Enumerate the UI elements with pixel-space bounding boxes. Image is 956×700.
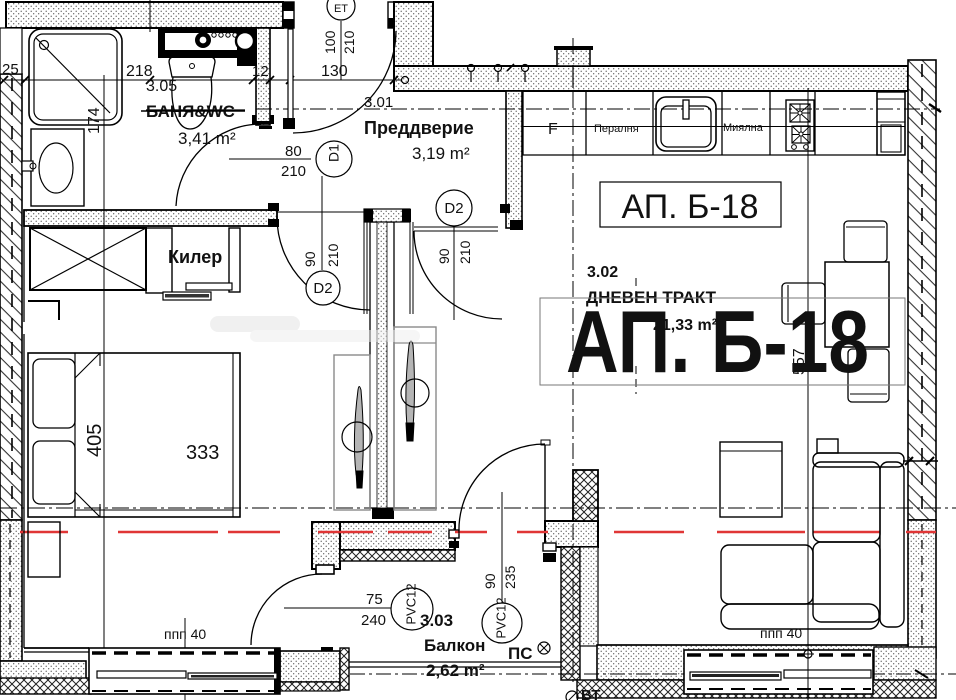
svg-text:25: 25 <box>2 61 19 78</box>
svg-text:ЕТ: ЕТ <box>334 3 348 15</box>
svg-text:3.01: 3.01 <box>364 94 393 111</box>
svg-text:90: 90 <box>302 251 318 267</box>
svg-text:Балкон: Балкон <box>424 636 485 655</box>
svg-text:210: 210 <box>341 30 357 54</box>
svg-text:90: 90 <box>436 248 452 264</box>
svg-text:240: 240 <box>361 612 386 629</box>
svg-text:174: 174 <box>86 107 103 134</box>
svg-text:3.05: 3.05 <box>146 78 177 95</box>
svg-text:3,41 m²: 3,41 m² <box>178 129 236 148</box>
svg-text:F: F <box>548 121 558 138</box>
svg-text:3,19 m²: 3,19 m² <box>412 144 470 163</box>
svg-text:333: 333 <box>186 442 219 464</box>
svg-text:PVC12: PVC12 <box>403 583 418 624</box>
svg-text:130: 130 <box>321 63 348 80</box>
svg-text:3.02: 3.02 <box>587 264 618 281</box>
svg-text:D2: D2 <box>444 200 463 217</box>
svg-text:12: 12 <box>252 63 269 80</box>
svg-text:Пералня: Пералня <box>594 123 639 135</box>
svg-text:80: 80 <box>285 143 302 160</box>
svg-text:210: 210 <box>325 243 341 267</box>
svg-text:405: 405 <box>84 424 106 457</box>
svg-text:PVC12: PVC12 <box>493 597 508 638</box>
svg-text:ппп 40: ппп 40 <box>760 625 802 641</box>
svg-text:557: 557 <box>791 348 808 375</box>
svg-text:ппп 40: ппп 40 <box>164 626 206 642</box>
svg-text:Преддверие: Преддверие <box>364 118 474 138</box>
svg-text:D2: D2 <box>313 280 332 297</box>
svg-text:210: 210 <box>281 163 306 180</box>
svg-text:Килер: Килер <box>168 247 222 267</box>
svg-text:100: 100 <box>322 30 338 54</box>
svg-text:90: 90 <box>482 573 498 589</box>
svg-text:3.03: 3.03 <box>420 611 453 630</box>
svg-text:235: 235 <box>502 565 518 589</box>
svg-text:D1: D1 <box>326 144 342 162</box>
svg-text:75: 75 <box>366 591 383 608</box>
svg-text:АП. Б-18: АП. Б-18 <box>566 292 869 391</box>
svg-text:ПС: ПС <box>508 644 533 663</box>
svg-text:ВТ: ВТ <box>581 687 600 700</box>
svg-text:2,62 m²: 2,62 m² <box>426 661 485 680</box>
svg-text:210: 210 <box>457 240 473 264</box>
svg-text:АП. Б-18: АП. Б-18 <box>621 188 758 226</box>
svg-text:Миялна: Миялна <box>723 122 764 134</box>
